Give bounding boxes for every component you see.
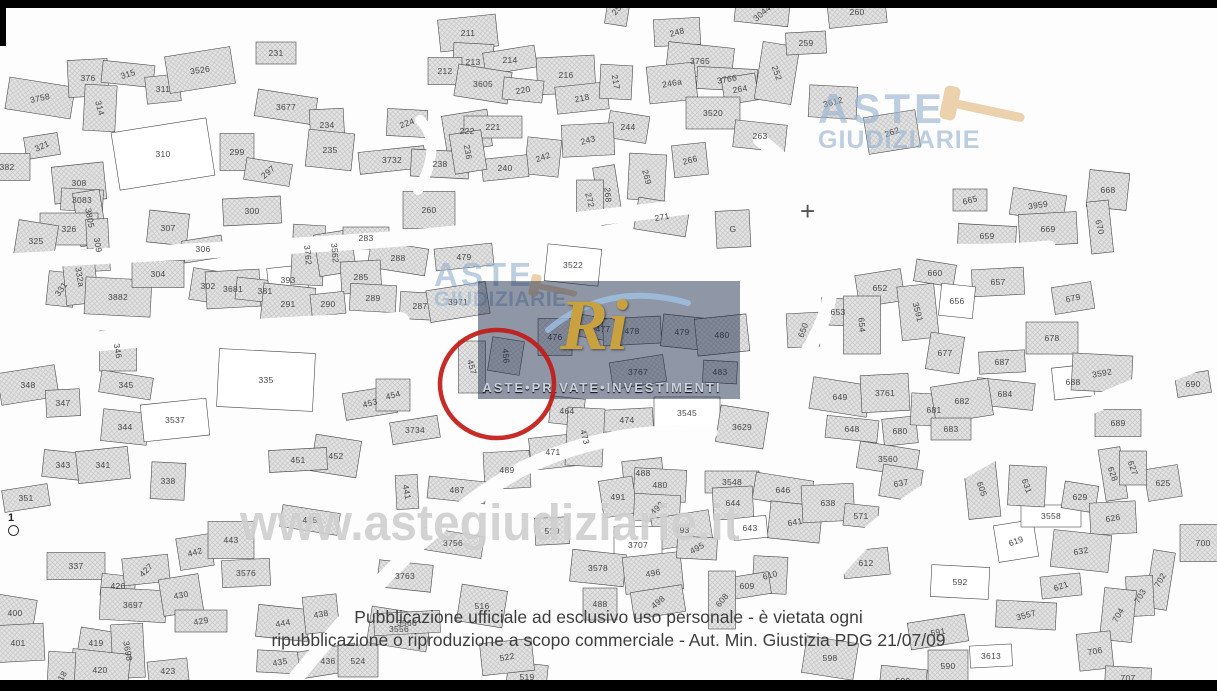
cadastral-map-screenshot: 3213823758376315311314352623136772342353…	[0, 0, 1217, 691]
highlight-circle	[440, 330, 554, 438]
highlight-layer	[0, 0, 1217, 691]
left-frame-bar	[0, 0, 6, 46]
top-frame-bar	[0, 0, 1217, 8]
bottom-frame-bar	[0, 680, 1217, 691]
